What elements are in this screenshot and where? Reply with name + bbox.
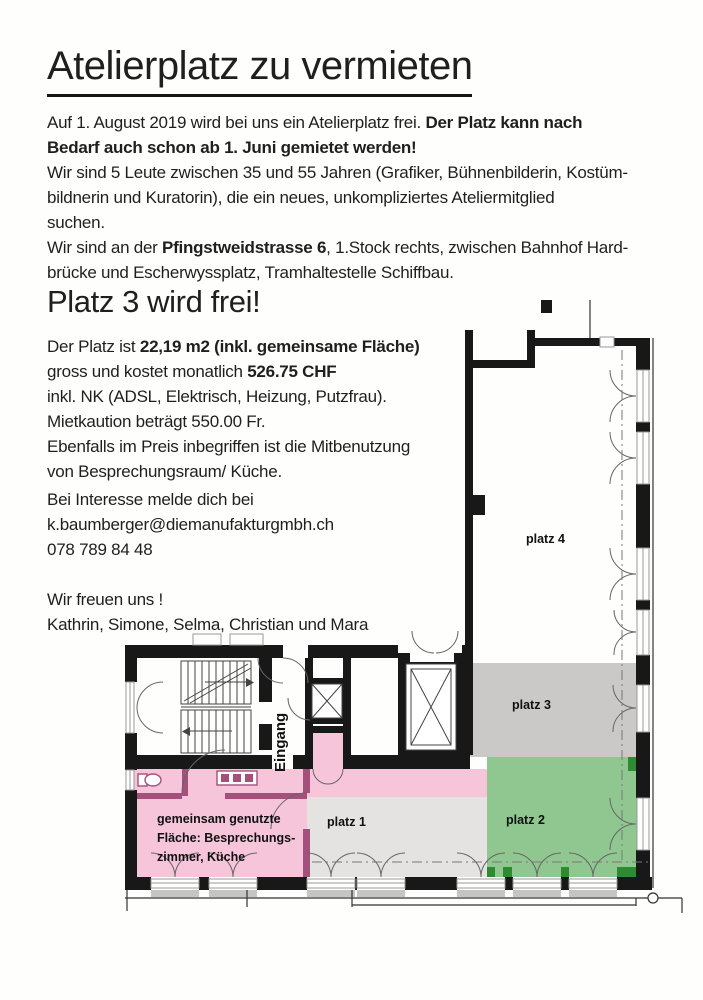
floor-plan	[0, 0, 703, 1000]
common-area-line1: gemeinsam genutzte	[157, 810, 295, 829]
room-label-platz1: platz 1	[327, 815, 366, 829]
room-label-common-area: gemeinsam genutzte Fläche: Besprechungs-…	[157, 810, 295, 867]
room-label-platz4: platz 4	[526, 532, 565, 546]
room-label-platz3: platz 3	[512, 698, 551, 712]
stairs	[181, 661, 254, 753]
common-area-line3: zimmer, Küche	[157, 848, 295, 867]
elevator-large	[398, 653, 464, 757]
entrance-label: Eingang	[272, 713, 289, 772]
flyer-page: Atelierplatz zu vermieten Auf 1. August …	[0, 0, 703, 1000]
common-area-line2: Fläche: Besprechungs-	[157, 829, 295, 848]
room-label-platz2: platz 2	[506, 813, 545, 827]
elevator-small	[306, 678, 348, 724]
